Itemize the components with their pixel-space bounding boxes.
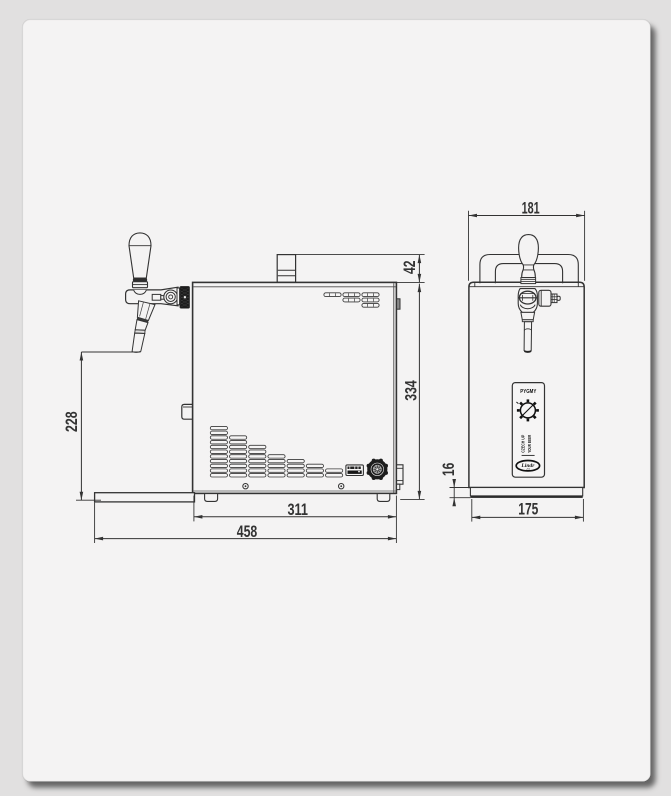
svg-text:311: 311 <box>287 500 308 519</box>
svg-text:CZ: CZ <box>527 468 531 471</box>
svg-text:YOUR BEER: YOUR BEER <box>527 434 532 452</box>
svg-text:181: 181 <box>522 198 540 217</box>
svg-text:PYGMY: PYGMY <box>520 389 536 395</box>
svg-text:458: 458 <box>237 522 258 541</box>
svg-text:16: 16 <box>439 463 458 477</box>
svg-text:42: 42 <box>400 261 419 275</box>
svg-text:334: 334 <box>402 380 421 401</box>
svg-text:175: 175 <box>518 499 538 518</box>
svg-text:CZECH UP: CZECH UP <box>521 435 526 453</box>
svg-text:228: 228 <box>62 411 81 432</box>
